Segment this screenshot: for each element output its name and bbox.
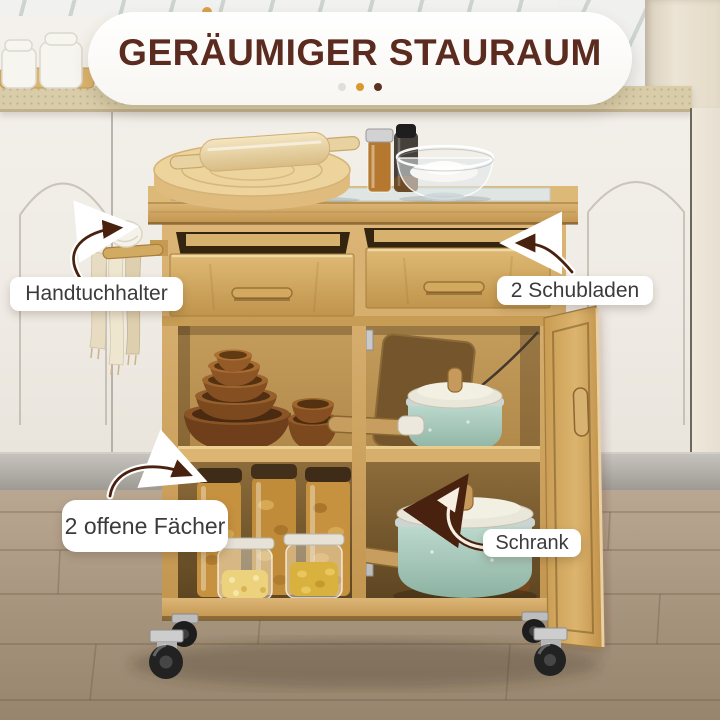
door-handle (573, 388, 589, 436)
drawer-left (170, 232, 354, 316)
clip-jar-popcorn (216, 538, 274, 600)
orange-dot (356, 83, 364, 91)
ceramic-canisters (0, 33, 94, 88)
callout-cabinet: Schrank (483, 529, 581, 557)
drawer-right-handle (424, 282, 484, 292)
mid-rail (162, 316, 566, 326)
title-banner: GERÄUMIGER STAURAUM (88, 12, 632, 105)
door-hinge-top (366, 330, 373, 350)
caster-front-right (534, 628, 567, 676)
pan-handle-ferrule (398, 416, 424, 435)
page-title: GERÄUMIGER STAURAUM (118, 32, 602, 74)
drawer-left-handle (232, 288, 292, 298)
product-infographic: GERÄUMIGER STAURAUM Handtuchhalter 2 Sch… (0, 0, 720, 720)
callout-towel-holder: Handtuchhalter (10, 277, 183, 311)
callout-open-shelves: 2 offene Fächer (62, 500, 228, 552)
gray-dot (338, 83, 346, 91)
rolled-towel (110, 221, 142, 247)
cabinet-door-open (544, 306, 606, 650)
pot-lid-knob (457, 484, 473, 510)
banner-dots (338, 83, 382, 91)
pan-lid-knob (448, 368, 462, 392)
cart-floor-shadow (130, 640, 600, 688)
spice-jar (366, 129, 393, 192)
callout-drawers: 2 Schubladen (497, 276, 653, 305)
caster-front-left (149, 630, 183, 679)
brown-dot (374, 83, 382, 91)
scene-artwork (0, 0, 720, 720)
clip-jar-pasta (284, 534, 344, 598)
